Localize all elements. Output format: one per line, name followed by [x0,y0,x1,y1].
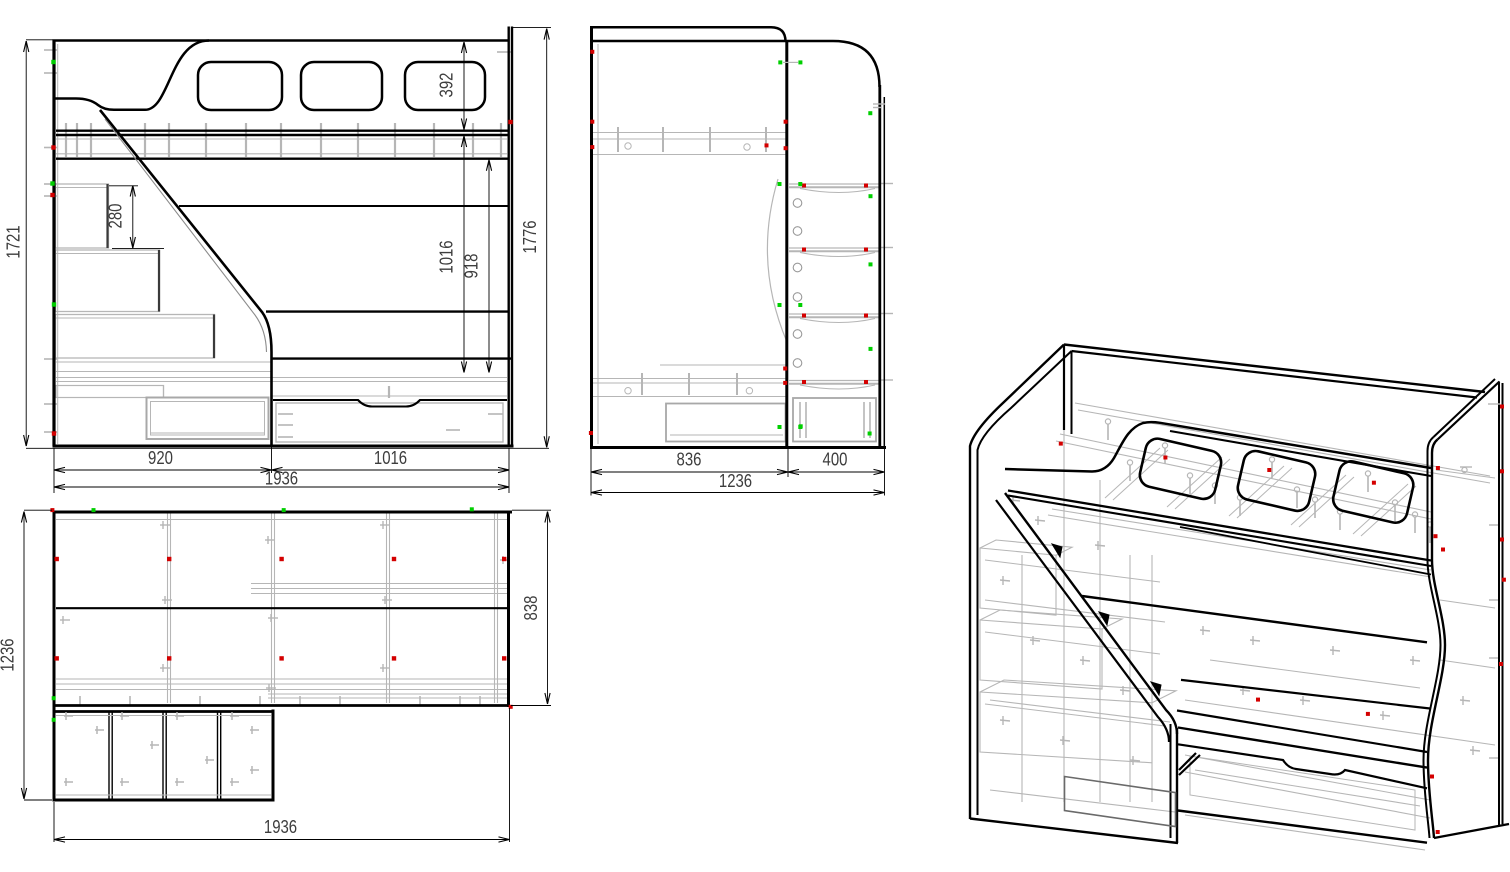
svg-text:1721: 1721 [4,225,24,258]
svg-text:920: 920 [148,448,173,468]
svg-text:1936: 1936 [265,469,298,489]
svg-text:392: 392 [437,73,457,98]
svg-text:918: 918 [462,254,482,279]
svg-text:1776: 1776 [520,220,540,253]
svg-text:1016: 1016 [374,448,407,468]
svg-text:280: 280 [106,204,126,229]
svg-text:1236: 1236 [0,638,18,671]
svg-text:838: 838 [521,596,541,621]
svg-text:836: 836 [677,450,702,470]
svg-text:1016: 1016 [437,240,457,273]
svg-text:400: 400 [823,450,848,470]
svg-text:1936: 1936 [264,817,297,837]
svg-text:1236: 1236 [719,471,752,491]
